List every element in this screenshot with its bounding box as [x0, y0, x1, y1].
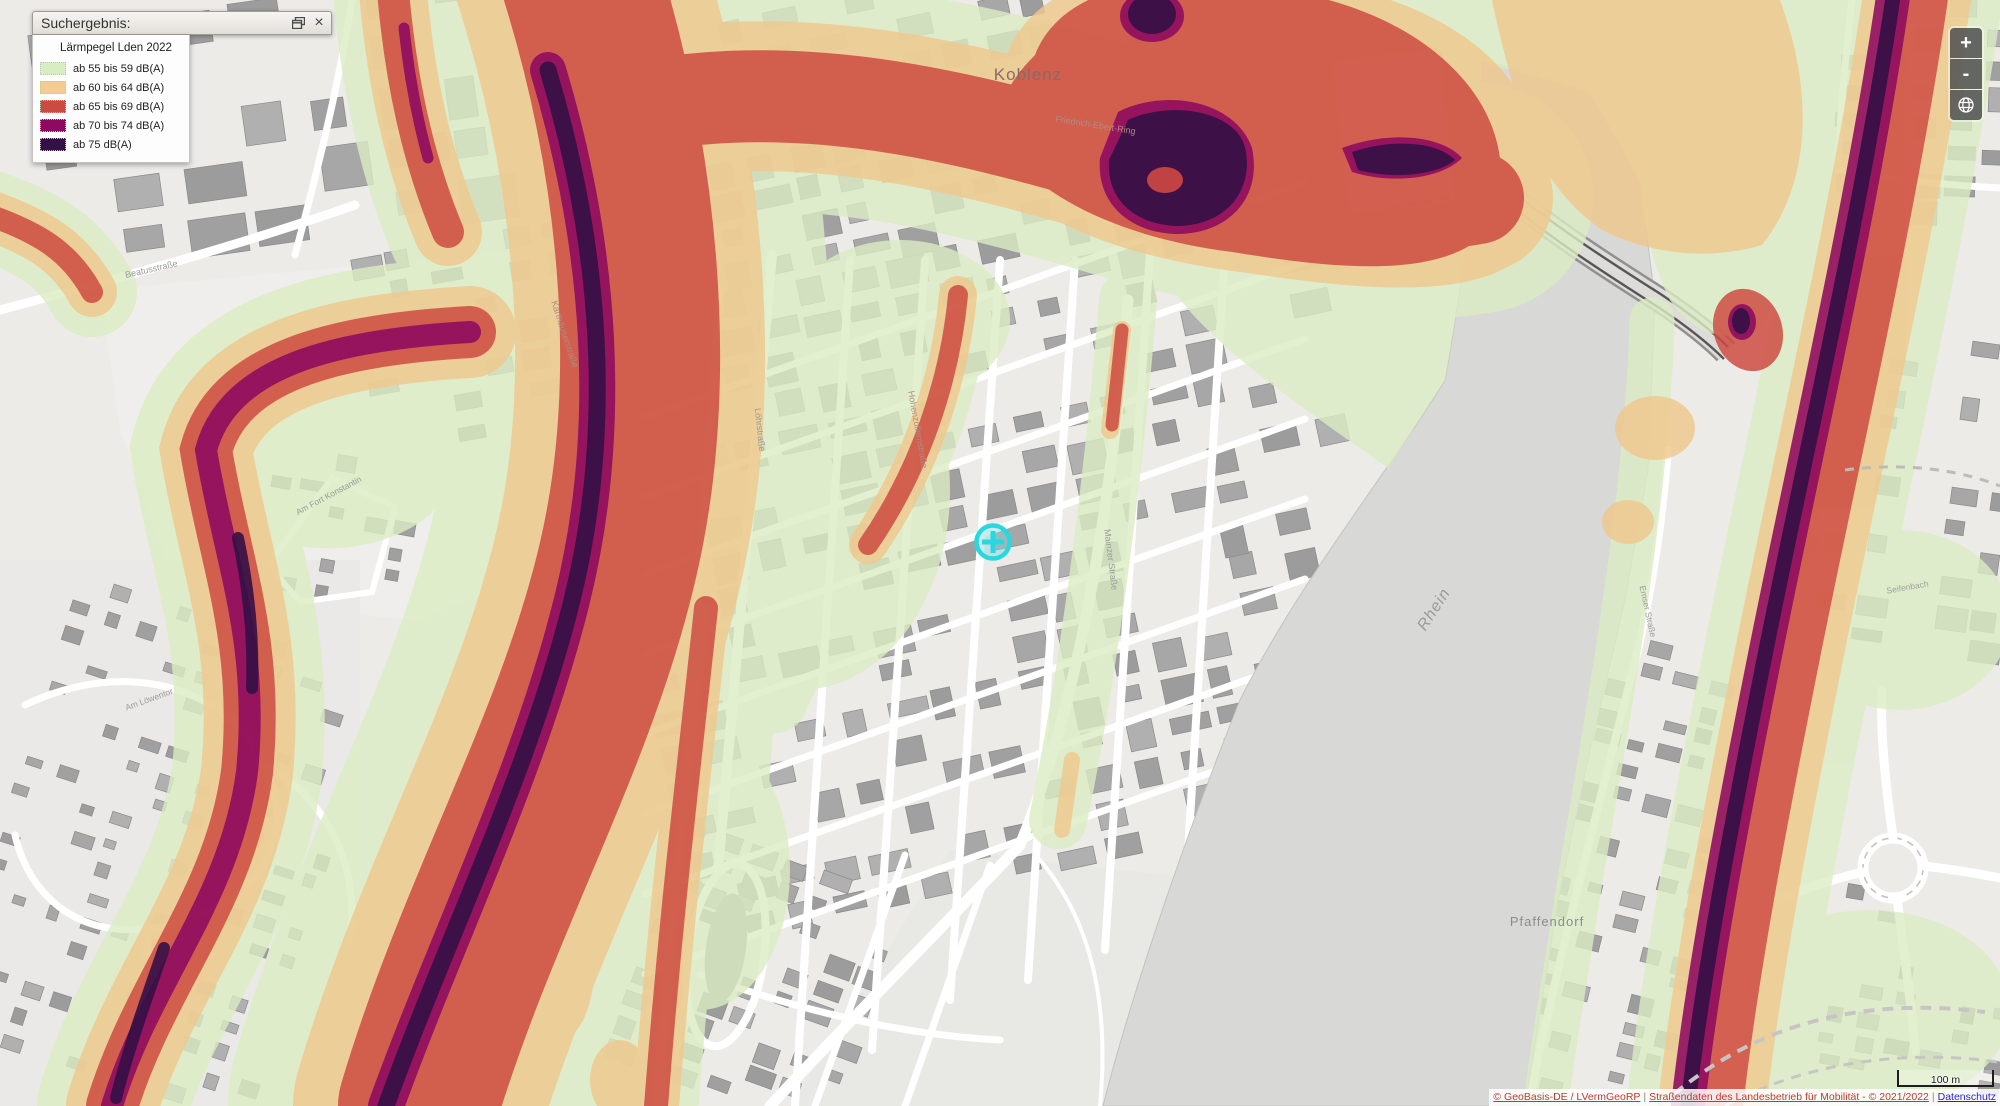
- scale-bar-label: 100 m: [1931, 1074, 1960, 1086]
- zoom-out-button[interactable]: -: [1950, 59, 1982, 89]
- map-canvas[interactable]: KoblenzRheinPfaffendorfBeatusstraßeFried…: [0, 0, 2000, 1106]
- legend-item-70-74: ab 70 bis 74 dB(A): [33, 116, 189, 135]
- legend-swatch: [40, 100, 66, 113]
- svg-text:Pfaffendorf: Pfaffendorf: [1510, 914, 1584, 929]
- map-viewport: KoblenzRheinPfaffendorfBeatusstraßeFried…: [0, 0, 2000, 1106]
- panel-title: Suchergebnis:: [33, 15, 289, 31]
- map-controls: + -: [1948, 26, 1984, 122]
- legend-swatch: [40, 62, 66, 75]
- globe-icon: [1957, 96, 1975, 114]
- restore-window-icon[interactable]: [289, 14, 307, 32]
- close-icon[interactable]: ×: [310, 14, 328, 32]
- legend-item-75: ab 75 dB(A): [33, 135, 189, 154]
- legend-panel: Lärmpegel Lden 2022 ab 55 bis 59 dB(A) a…: [32, 35, 190, 163]
- zoom-in-button[interactable]: +: [1950, 28, 1982, 58]
- attribution-bar: © GeoBasis-DE / LVermGeoRP|Straßendaten …: [1489, 1089, 2000, 1106]
- legend-swatch: [40, 119, 66, 132]
- geobasis-link[interactable]: © GeoBasis-DE / LVermGeoRP: [1493, 1091, 1640, 1103]
- legend-swatch: [40, 138, 66, 151]
- legend-item-65-69: ab 65 bis 69 dB(A): [33, 97, 189, 116]
- search-result-panel-header[interactable]: Suchergebnis: ×: [32, 11, 332, 35]
- legend-item-55-59: ab 55 bis 59 dB(A): [33, 59, 189, 78]
- privacy-link[interactable]: Datenschutz: [1938, 1091, 1996, 1103]
- legend-swatch: [40, 81, 66, 94]
- legend-title: Lärmpegel Lden 2022: [33, 42, 189, 54]
- legend-item-60-64: ab 60 bis 64 dB(A): [33, 78, 189, 97]
- scale-bar: 100 m: [1897, 1070, 1994, 1087]
- roads-attribution-link[interactable]: Straßendaten des Landesbetrieb für Mobil…: [1649, 1091, 1929, 1103]
- globe-home-button[interactable]: [1950, 90, 1982, 120]
- svg-text:Koblenz: Koblenz: [994, 65, 1062, 84]
